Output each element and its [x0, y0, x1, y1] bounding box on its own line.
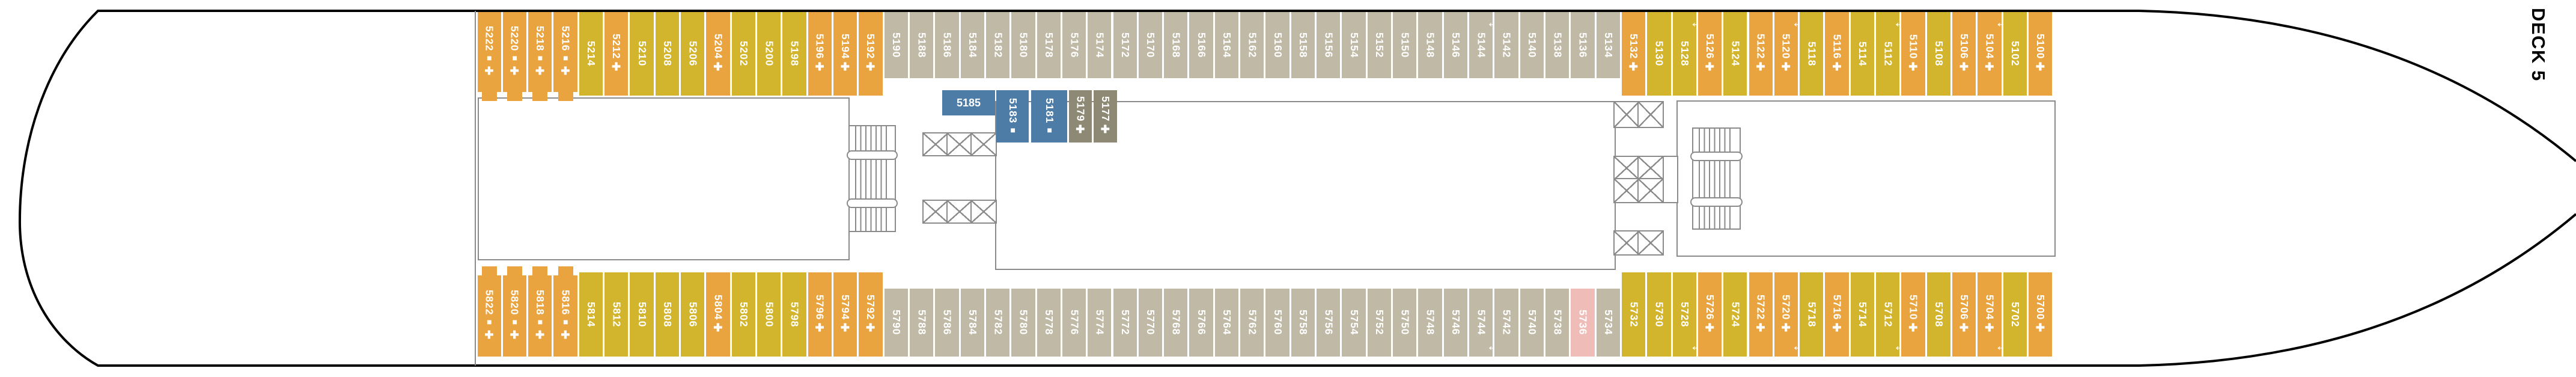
- cabin-number: 5162: [1247, 32, 1258, 58]
- cabin-number: 5114: [1857, 41, 1868, 66]
- cabin-number: 5798: [789, 302, 800, 327]
- elevator-icon: [970, 132, 997, 156]
- cabin-number: 5134: [1603, 32, 1613, 58]
- cabin-number: 5108: [1934, 41, 1944, 66]
- stair-flight: [1699, 160, 1734, 201]
- cabin-5796[interactable]: 5796✚: [808, 272, 832, 357]
- cabin-5177[interactable]: 5177✚: [1094, 90, 1117, 143]
- cabin-5702[interactable]: 5702: [2003, 272, 2027, 357]
- plus-icon: ✚: [713, 322, 723, 335]
- cabin-5122[interactable]: 5122✚: [1749, 12, 1773, 96]
- cabin-number: 5100✚: [2035, 34, 2046, 74]
- cabin-5730[interactable]: 5730: [1647, 272, 1670, 357]
- stair-flight: [855, 159, 889, 202]
- cabin-number: 5724: [1730, 302, 1741, 327]
- cabin-5124[interactable]: 5124: [1723, 12, 1747, 96]
- cabin-number: 5742: [1501, 310, 1512, 335]
- cabin-5808[interactable]: 5808: [656, 272, 679, 357]
- cabin-5774[interactable]: 5774: [1088, 289, 1111, 357]
- square-icon: ■: [1046, 125, 1054, 135]
- plus-icon: ✚: [840, 322, 851, 335]
- cabin-number: 5172: [1119, 32, 1130, 58]
- cabin-5178[interactable]: 5178: [1037, 12, 1061, 78]
- plus-icon: ✚: [1705, 322, 1716, 335]
- cabin-5216[interactable]: 5216■✚: [553, 12, 577, 92]
- elevator-icon: [1613, 156, 1640, 180]
- cabin-5183[interactable]: 5183■: [996, 90, 1029, 143]
- cabin-5764[interactable]: 5764: [1215, 289, 1238, 357]
- cabin-number: 5740: [1527, 310, 1538, 335]
- square-icon: ■: [485, 317, 493, 327]
- cabin-number: 5774: [1094, 310, 1105, 335]
- plus-icon: ✚: [1908, 322, 1919, 335]
- cabin-5202[interactable]: 5202: [732, 12, 755, 96]
- cabin-number: 5144: [1476, 32, 1487, 58]
- cabin-5792[interactable]: 5792✚: [859, 272, 882, 357]
- cabin-number: 5702: [2010, 302, 2021, 327]
- cabin-number: 5768: [1171, 310, 1181, 335]
- cabin-5192[interactable]: 5192✚: [859, 12, 882, 96]
- cabin-number: 5736: [1577, 310, 1588, 335]
- cabin-5108[interactable]: 5108: [1927, 12, 1950, 96]
- cabin-number: 5138: [1552, 32, 1563, 58]
- cabin-5166[interactable]: 5166: [1189, 12, 1213, 78]
- cabin-5130[interactable]: 5130: [1647, 12, 1670, 96]
- plus-icon: ✚: [1908, 61, 1919, 74]
- cabin-number: 5194✚: [839, 34, 851, 74]
- cabin-5728[interactable]: 5728↔: [1673, 272, 1696, 357]
- cabin-number: 5126✚: [1704, 34, 1716, 74]
- cabin-5158[interactable]: 5158: [1291, 12, 1315, 78]
- cabin-number: 5210: [636, 41, 647, 66]
- plus-icon: ✚: [865, 322, 876, 335]
- plus-icon: ✚: [1755, 322, 1766, 335]
- cabin-5180[interactable]: 5180: [1011, 12, 1035, 78]
- cabin-5218[interactable]: 5218■✚: [528, 12, 552, 92]
- service-room: [1661, 156, 1678, 203]
- plus-icon: ✚: [1984, 61, 1995, 74]
- plus-icon: ✚: [484, 65, 495, 78]
- cabin-5220[interactable]: 5220■✚: [503, 12, 526, 92]
- cabin-5710[interactable]: 5710✚: [1901, 272, 1925, 357]
- stair-landing: [847, 198, 898, 208]
- elevator-icon: [922, 200, 949, 224]
- cabin-5212[interactable]: 5212✚: [604, 12, 628, 96]
- cabin-number: 5780: [1018, 310, 1029, 335]
- cabin-5186[interactable]: 5186: [935, 12, 958, 78]
- elevator-icon: [946, 132, 973, 156]
- cabin-5812[interactable]: 5812: [604, 272, 628, 357]
- cabin-extension: [558, 266, 573, 275]
- cabin-number: 5154: [1348, 32, 1359, 58]
- cabin-number: 5106✚: [1958, 34, 1970, 74]
- cabin-number: 5716✚: [1832, 295, 1843, 335]
- cabin-5132[interactable]: 5132✚: [1622, 12, 1645, 96]
- cabin-5116[interactable]: 5116✚: [1825, 12, 1848, 96]
- cabin-5746[interactable]: 5746: [1444, 289, 1467, 357]
- cabin-extension: [482, 266, 497, 275]
- cabin-5754[interactable]: 5754: [1342, 289, 1365, 357]
- plus-icon: ✚: [1959, 61, 1970, 74]
- cabin-5724[interactable]: 5724: [1723, 272, 1747, 357]
- cabin-number: 5104✚: [1984, 34, 1996, 74]
- plus-icon: ✚: [560, 65, 571, 78]
- cabin-5168[interactable]: 5168: [1164, 12, 1187, 78]
- cabin-5782[interactable]: 5782: [986, 289, 1009, 357]
- cabin-5174[interactable]: 5174: [1088, 12, 1111, 78]
- cabin-number: 5204✚: [713, 34, 724, 74]
- deck-title: DECK 5: [2527, 8, 2549, 82]
- cabin-5736[interactable]: 5736: [1571, 289, 1594, 357]
- cabin-number: 5208: [662, 41, 673, 66]
- cabin-5756[interactable]: 5756: [1317, 289, 1340, 357]
- cabin-5160[interactable]: 5160: [1265, 12, 1289, 78]
- cabin-number: 5170: [1145, 32, 1156, 58]
- square-icon: ■: [511, 53, 519, 63]
- plus-icon: ✚: [815, 322, 826, 335]
- cabin-5214[interactable]: 5214: [579, 12, 603, 96]
- cabin-number: 5734: [1603, 310, 1613, 335]
- cabin-5136[interactable]: 5136: [1571, 12, 1594, 78]
- cabin-5760[interactable]: 5760: [1265, 289, 1289, 357]
- elevator-icon: [1637, 230, 1664, 256]
- square-icon: ■: [536, 53, 544, 63]
- plus-icon: ✚: [510, 329, 520, 342]
- cabin-5176[interactable]: 5176: [1062, 12, 1086, 78]
- cabin-5768[interactable]: 5768: [1164, 289, 1187, 357]
- cabin-number: 5818■✚: [535, 290, 546, 342]
- cabin-number: 5714: [1857, 302, 1868, 327]
- forward-section-wall: [475, 11, 476, 366]
- cabin-5790[interactable]: 5790: [885, 289, 908, 357]
- cabin-5210[interactable]: 5210: [630, 12, 653, 96]
- cabin-5732[interactable]: 5732: [1622, 272, 1645, 357]
- cabin-number: 5200: [764, 41, 775, 66]
- cabin-number: 5794✚: [839, 295, 851, 335]
- elevator-icon: [1613, 178, 1640, 203]
- cabin-number: 5146: [1451, 32, 1461, 58]
- cabin-number: 5156: [1323, 32, 1334, 58]
- cabin-5800[interactable]: 5800: [757, 272, 781, 357]
- cabin-extension: [532, 92, 547, 101]
- elevator-icon: [1637, 101, 1664, 128]
- cabin-number: 5128: [1679, 41, 1690, 66]
- plus-icon: ✚: [713, 61, 723, 74]
- square-icon: ■: [511, 317, 519, 327]
- cabin-number: 5712: [1883, 302, 1893, 327]
- cabin-number: 5762: [1247, 310, 1258, 335]
- cabin-number: 5786: [942, 310, 952, 335]
- cabin-5780[interactable]: 5780: [1011, 289, 1035, 357]
- cabin-number: 5116✚: [1832, 34, 1843, 74]
- cabin-5126[interactable]: 5126✚: [1698, 12, 1722, 96]
- cabin-number: 5216■✚: [560, 26, 571, 78]
- cabin-5110[interactable]: 5110✚: [1901, 12, 1925, 96]
- stair-flight: [855, 126, 889, 152]
- cabin-number: 5130: [1654, 41, 1664, 66]
- cabin-number: 5764: [1222, 310, 1232, 335]
- cabin-number: 5810: [636, 302, 647, 327]
- cabin-5222[interactable]: 5222■✚: [478, 12, 501, 92]
- cabin-5154[interactable]: 5154: [1342, 12, 1365, 78]
- cabin-number: 5748: [1425, 310, 1436, 335]
- cabin-5106[interactable]: 5106✚: [1952, 12, 1976, 96]
- cabin-5788[interactable]: 5788: [910, 289, 933, 357]
- cabin-number: 5185: [957, 97, 981, 108]
- cabin-number: 5770: [1145, 310, 1156, 335]
- cabin-number: 5720✚: [1780, 295, 1792, 335]
- cabin-5194[interactable]: 5194✚: [833, 12, 857, 96]
- cabin-number: 5808: [662, 302, 673, 327]
- cabin-5742[interactable]: 5742: [1494, 289, 1518, 357]
- cabin-number: 5816■✚: [560, 290, 571, 342]
- cabin-5798[interactable]: 5798: [782, 272, 806, 357]
- square-icon: ■: [536, 317, 544, 327]
- cabin-5120[interactable]: 5120✚↔: [1774, 12, 1798, 96]
- cabin-number: 5164: [1222, 32, 1232, 58]
- cabin-5704[interactable]: 5704✚↔: [1978, 272, 2001, 357]
- staircase-midship: [848, 125, 896, 232]
- cabin-5758[interactable]: 5758: [1291, 289, 1315, 357]
- cabin-5128[interactable]: 5128↔: [1673, 12, 1696, 96]
- cabin-5762[interactable]: 5762: [1240, 289, 1264, 357]
- cabin-extension: [507, 266, 522, 275]
- cabin-number: 5802: [738, 302, 749, 327]
- cabin-number: 5738: [1552, 310, 1563, 335]
- cabin-number: 5730: [1654, 302, 1664, 327]
- cabin-number: 5174: [1094, 32, 1105, 58]
- cabin-5144[interactable]: 5144↔: [1469, 12, 1493, 78]
- cabin-number: 5822■✚: [484, 290, 495, 342]
- cabin-5706[interactable]: 5706✚: [1952, 272, 1976, 357]
- cabin-5140[interactable]: 5140: [1520, 12, 1544, 78]
- cabin-number: 5710✚: [1908, 295, 1919, 335]
- cabin-5112[interactable]: 5112↔: [1876, 12, 1899, 96]
- cabin-5818[interactable]: 5818■✚: [528, 275, 552, 357]
- cabin-number: 5148: [1425, 32, 1436, 58]
- cabin-5784[interactable]: 5784: [961, 289, 984, 357]
- cabin-5114[interactable]: 5114: [1851, 12, 1874, 96]
- cabin-number: 5752: [1374, 310, 1385, 335]
- cabin-5181[interactable]: 5181■: [1031, 90, 1067, 143]
- cabin-5740[interactable]: 5740: [1520, 289, 1544, 357]
- cabin-number: 5744: [1476, 310, 1487, 335]
- stair-landing: [1690, 152, 1743, 161]
- cabin-number: 5132✚: [1628, 34, 1639, 74]
- cabin-5734[interactable]: 5734: [1597, 289, 1620, 357]
- cabin-number: 5168: [1171, 32, 1181, 58]
- cabin-extension: [507, 92, 522, 101]
- cabin-number: 5212✚: [611, 34, 623, 74]
- cabin-5172[interactable]: 5172: [1113, 12, 1137, 78]
- cabin-number: 5196✚: [814, 34, 826, 74]
- cabin-number: 5792✚: [865, 295, 877, 335]
- cabin-5744[interactable]: 5744↔: [1469, 289, 1493, 357]
- cabin-5738[interactable]: 5738: [1545, 289, 1569, 357]
- cabin-number: 5118: [1806, 41, 1817, 66]
- cabin-5138[interactable]: 5138: [1545, 12, 1569, 78]
- cabin-5726[interactable]: 5726✚: [1698, 272, 1722, 357]
- cabin-5150[interactable]: 5150: [1393, 12, 1416, 78]
- cabin-number: 5181■: [1044, 98, 1055, 135]
- cabin-5716[interactable]: 5716✚: [1825, 272, 1848, 357]
- cabin-5188[interactable]: 5188: [910, 12, 933, 78]
- plus-icon: ✚: [1832, 322, 1842, 335]
- cabin-number: 5150: [1399, 32, 1410, 58]
- cabin-number: 5806: [687, 302, 698, 327]
- cabin-5148[interactable]: 5148: [1418, 12, 1442, 78]
- cabin-5200[interactable]: 5200: [757, 12, 781, 96]
- cabin-5748[interactable]: 5748: [1418, 289, 1442, 357]
- cabin-5184[interactable]: 5184: [961, 12, 984, 78]
- cabin-5206[interactable]: 5206: [681, 12, 704, 96]
- cabin-number: 5140: [1527, 32, 1538, 58]
- cabin-5806[interactable]: 5806: [681, 272, 704, 357]
- cabin-number: 5192✚: [865, 34, 877, 74]
- cabin-number: 5804✚: [713, 295, 724, 335]
- cabin-5714[interactable]: 5714: [1851, 272, 1874, 357]
- cabin-number: 5778: [1043, 310, 1054, 335]
- cabin-number: 5112: [1883, 41, 1893, 66]
- cabin-number: 5198: [789, 41, 800, 66]
- cabin-5722[interactable]: 5722✚: [1749, 272, 1773, 357]
- cabin-number: 5166: [1196, 32, 1207, 58]
- cabin-5794[interactable]: 5794✚: [833, 272, 857, 357]
- cabin-number: 5708: [1934, 302, 1944, 327]
- cabin-5185[interactable]: 5185: [942, 90, 995, 115]
- cabin-5196[interactable]: 5196✚: [808, 12, 832, 96]
- cabin-5750[interactable]: 5750: [1393, 289, 1416, 357]
- stair-flight: [1699, 129, 1734, 153]
- cabin-number: 5782: [993, 310, 1003, 335]
- plus-icon: ✚: [815, 61, 826, 74]
- cabin-5816[interactable]: 5816■✚: [553, 275, 577, 357]
- plus-icon: ✚: [1832, 61, 1842, 74]
- plus-icon: ✚: [535, 65, 546, 78]
- square-icon: ■: [561, 53, 570, 63]
- cabin-5776[interactable]: 5776: [1062, 289, 1086, 357]
- cabin-number: 5152: [1374, 32, 1385, 58]
- cabin-number: 5124: [1730, 41, 1741, 66]
- elevator-icon: [1637, 156, 1664, 180]
- cabin-5164[interactable]: 5164: [1215, 12, 1238, 78]
- cabin-number: 5214: [586, 41, 597, 66]
- cabin-number: 5760: [1272, 310, 1283, 335]
- cabin-number: 5754: [1348, 310, 1359, 335]
- cabin-number: 5772: [1119, 310, 1130, 335]
- cabin-number: 5188: [916, 32, 927, 58]
- cabin-number: 5178: [1043, 32, 1054, 58]
- cabin-5820[interactable]: 5820■✚: [503, 275, 526, 357]
- cabin-5190[interactable]: 5190: [885, 12, 908, 78]
- plus-icon: ✚: [840, 61, 851, 74]
- cabin-5208[interactable]: 5208: [656, 12, 679, 96]
- plus-icon: ✚: [1705, 61, 1716, 74]
- stair-flight: [1699, 206, 1734, 228]
- cabin-number: 5796✚: [814, 295, 826, 335]
- cabin-5802[interactable]: 5802: [732, 272, 755, 357]
- cabin-5720[interactable]: 5720✚↔: [1774, 272, 1798, 357]
- cabin-number: 5732: [1628, 302, 1639, 327]
- cabin-5778[interactable]: 5778: [1037, 289, 1061, 357]
- cabin-5814[interactable]: 5814: [579, 272, 603, 357]
- cabin-5146[interactable]: 5146: [1444, 12, 1467, 78]
- plus-icon: ✚: [1628, 61, 1639, 74]
- cabin-5810[interactable]: 5810: [630, 272, 653, 357]
- cabin-number: 5202: [738, 41, 749, 66]
- cabin-number: 5700✚: [2035, 295, 2046, 335]
- cabin-5718[interactable]: 5718: [1800, 272, 1823, 357]
- cabin-5102[interactable]: 5102: [2003, 12, 2027, 96]
- cabin-number: 5704✚: [1984, 295, 1996, 335]
- cabin-5100[interactable]: 5100✚: [2029, 12, 2052, 96]
- cabin-extension: [558, 92, 573, 101]
- plus-icon: ✚: [484, 329, 495, 342]
- cabin-5142[interactable]: 5142: [1494, 12, 1518, 78]
- cabin-5752[interactable]: 5752: [1368, 289, 1391, 357]
- cabin-5786[interactable]: 5786: [935, 289, 958, 357]
- cabin-number: 5206: [687, 41, 698, 66]
- cabin-5712[interactable]: 5712↔: [1876, 272, 1899, 357]
- cabin-5156[interactable]: 5156: [1317, 12, 1340, 78]
- cabin-5822[interactable]: 5822■✚: [478, 275, 501, 357]
- cabin-5772[interactable]: 5772: [1113, 289, 1137, 357]
- cabin-5162[interactable]: 5162: [1240, 12, 1264, 78]
- square-icon: ■: [561, 317, 570, 327]
- cabin-5134[interactable]: 5134: [1597, 12, 1620, 78]
- plus-icon: ✚: [535, 329, 546, 342]
- cabin-5804[interactable]: 5804✚: [706, 272, 729, 357]
- cabin-extension: [532, 266, 547, 275]
- cabin-5170[interactable]: 5170: [1139, 12, 1162, 78]
- cabin-number: 5182: [993, 32, 1003, 58]
- cabin-number: 5758: [1298, 310, 1309, 335]
- cabin-number: 5722✚: [1755, 295, 1767, 335]
- cabin-number: 5718: [1806, 302, 1817, 327]
- cabin-number: 5820■✚: [509, 290, 520, 342]
- elevator-icon: [1637, 178, 1664, 203]
- interior-room-left: [478, 97, 850, 260]
- square-icon: ■: [485, 53, 493, 63]
- cabin-number: 5728: [1679, 302, 1690, 327]
- cabin-5204[interactable]: 5204✚: [706, 12, 729, 96]
- plus-icon: ✚: [865, 61, 876, 74]
- cabin-5152[interactable]: 5152: [1368, 12, 1391, 78]
- cabin-5700[interactable]: 5700✚: [2029, 272, 2052, 357]
- cabin-5179[interactable]: 5179✚: [1069, 90, 1092, 143]
- cabin-5182[interactable]: 5182: [986, 12, 1009, 78]
- plus-icon: ✚: [1984, 322, 1995, 335]
- plus-icon: ✚: [510, 65, 520, 78]
- cabin-number: 5122✚: [1755, 34, 1767, 74]
- cabin-5708[interactable]: 5708: [1927, 272, 1950, 357]
- cabin-number: 5222■✚: [484, 26, 495, 78]
- cabin-5104[interactable]: 5104✚↔: [1978, 12, 2001, 96]
- elevator-icon: [1613, 101, 1640, 128]
- cabin-5198[interactable]: 5198: [782, 12, 806, 96]
- cabin-5766[interactable]: 5766: [1189, 289, 1213, 357]
- cabin-5770[interactable]: 5770: [1139, 289, 1162, 357]
- cabin-number: 5218■✚: [535, 26, 546, 78]
- plus-icon: ✚: [1755, 61, 1766, 74]
- cabin-number: 5750: [1399, 310, 1410, 335]
- cabin-number: 5102: [2010, 41, 2021, 66]
- cabin-number: 5190: [891, 32, 902, 58]
- cabin-number: 5776: [1069, 310, 1080, 335]
- cabin-5118[interactable]: 5118: [1800, 12, 1823, 96]
- stair-flight: [855, 207, 889, 231]
- cabin-number: 5800: [764, 302, 775, 327]
